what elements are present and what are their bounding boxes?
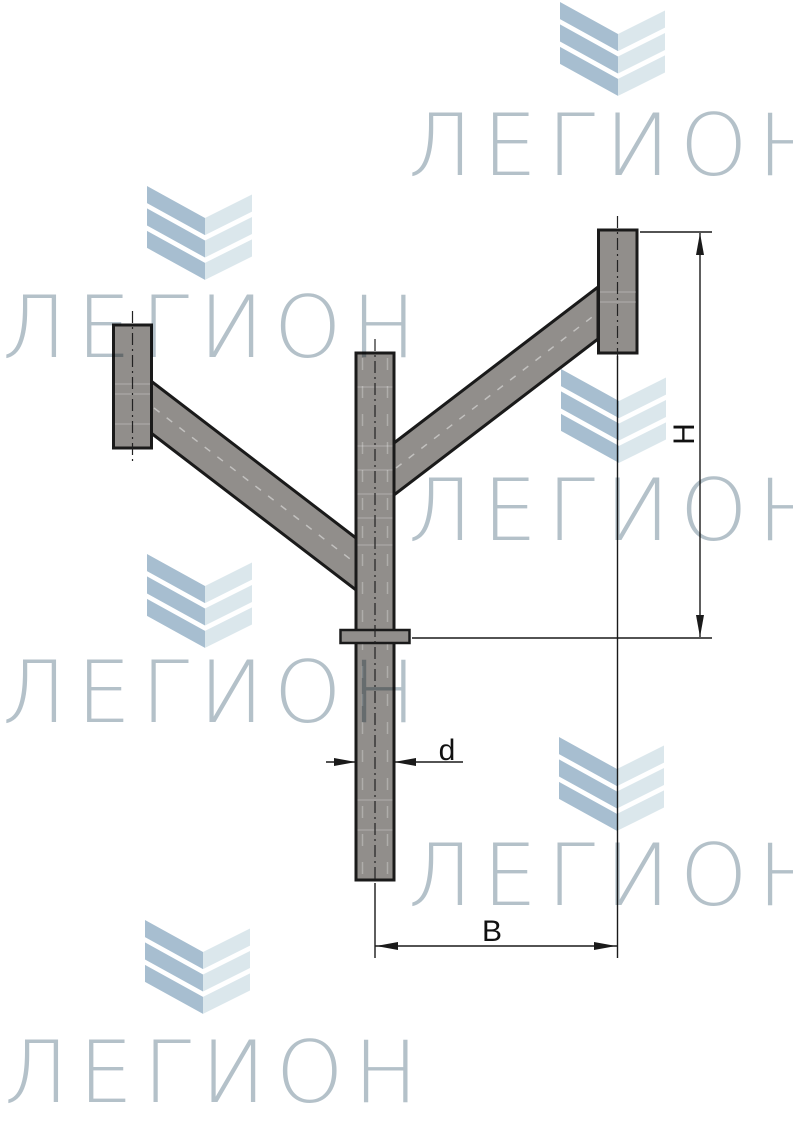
bracket-drawing-page: H d B ЛЕГИОН ЛЕГИОН (0, 0, 793, 1123)
right-arm-tube (394, 287, 598, 495)
h-up-arrow (696, 233, 704, 255)
left-arm-tube (151, 381, 356, 590)
dimension-d-label: d (439, 734, 456, 767)
d-left-arrow (334, 758, 356, 766)
b-left-arrow (376, 942, 398, 950)
dimension-H-label: H (668, 423, 701, 445)
b-right-arrow (594, 942, 616, 950)
d-right-arrow (394, 758, 416, 766)
centerlines (133, 216, 618, 880)
bracket-technical-drawing: H d B (0, 0, 793, 1123)
h-down-arrow (696, 615, 704, 637)
dimension-B-label: B (482, 915, 502, 948)
